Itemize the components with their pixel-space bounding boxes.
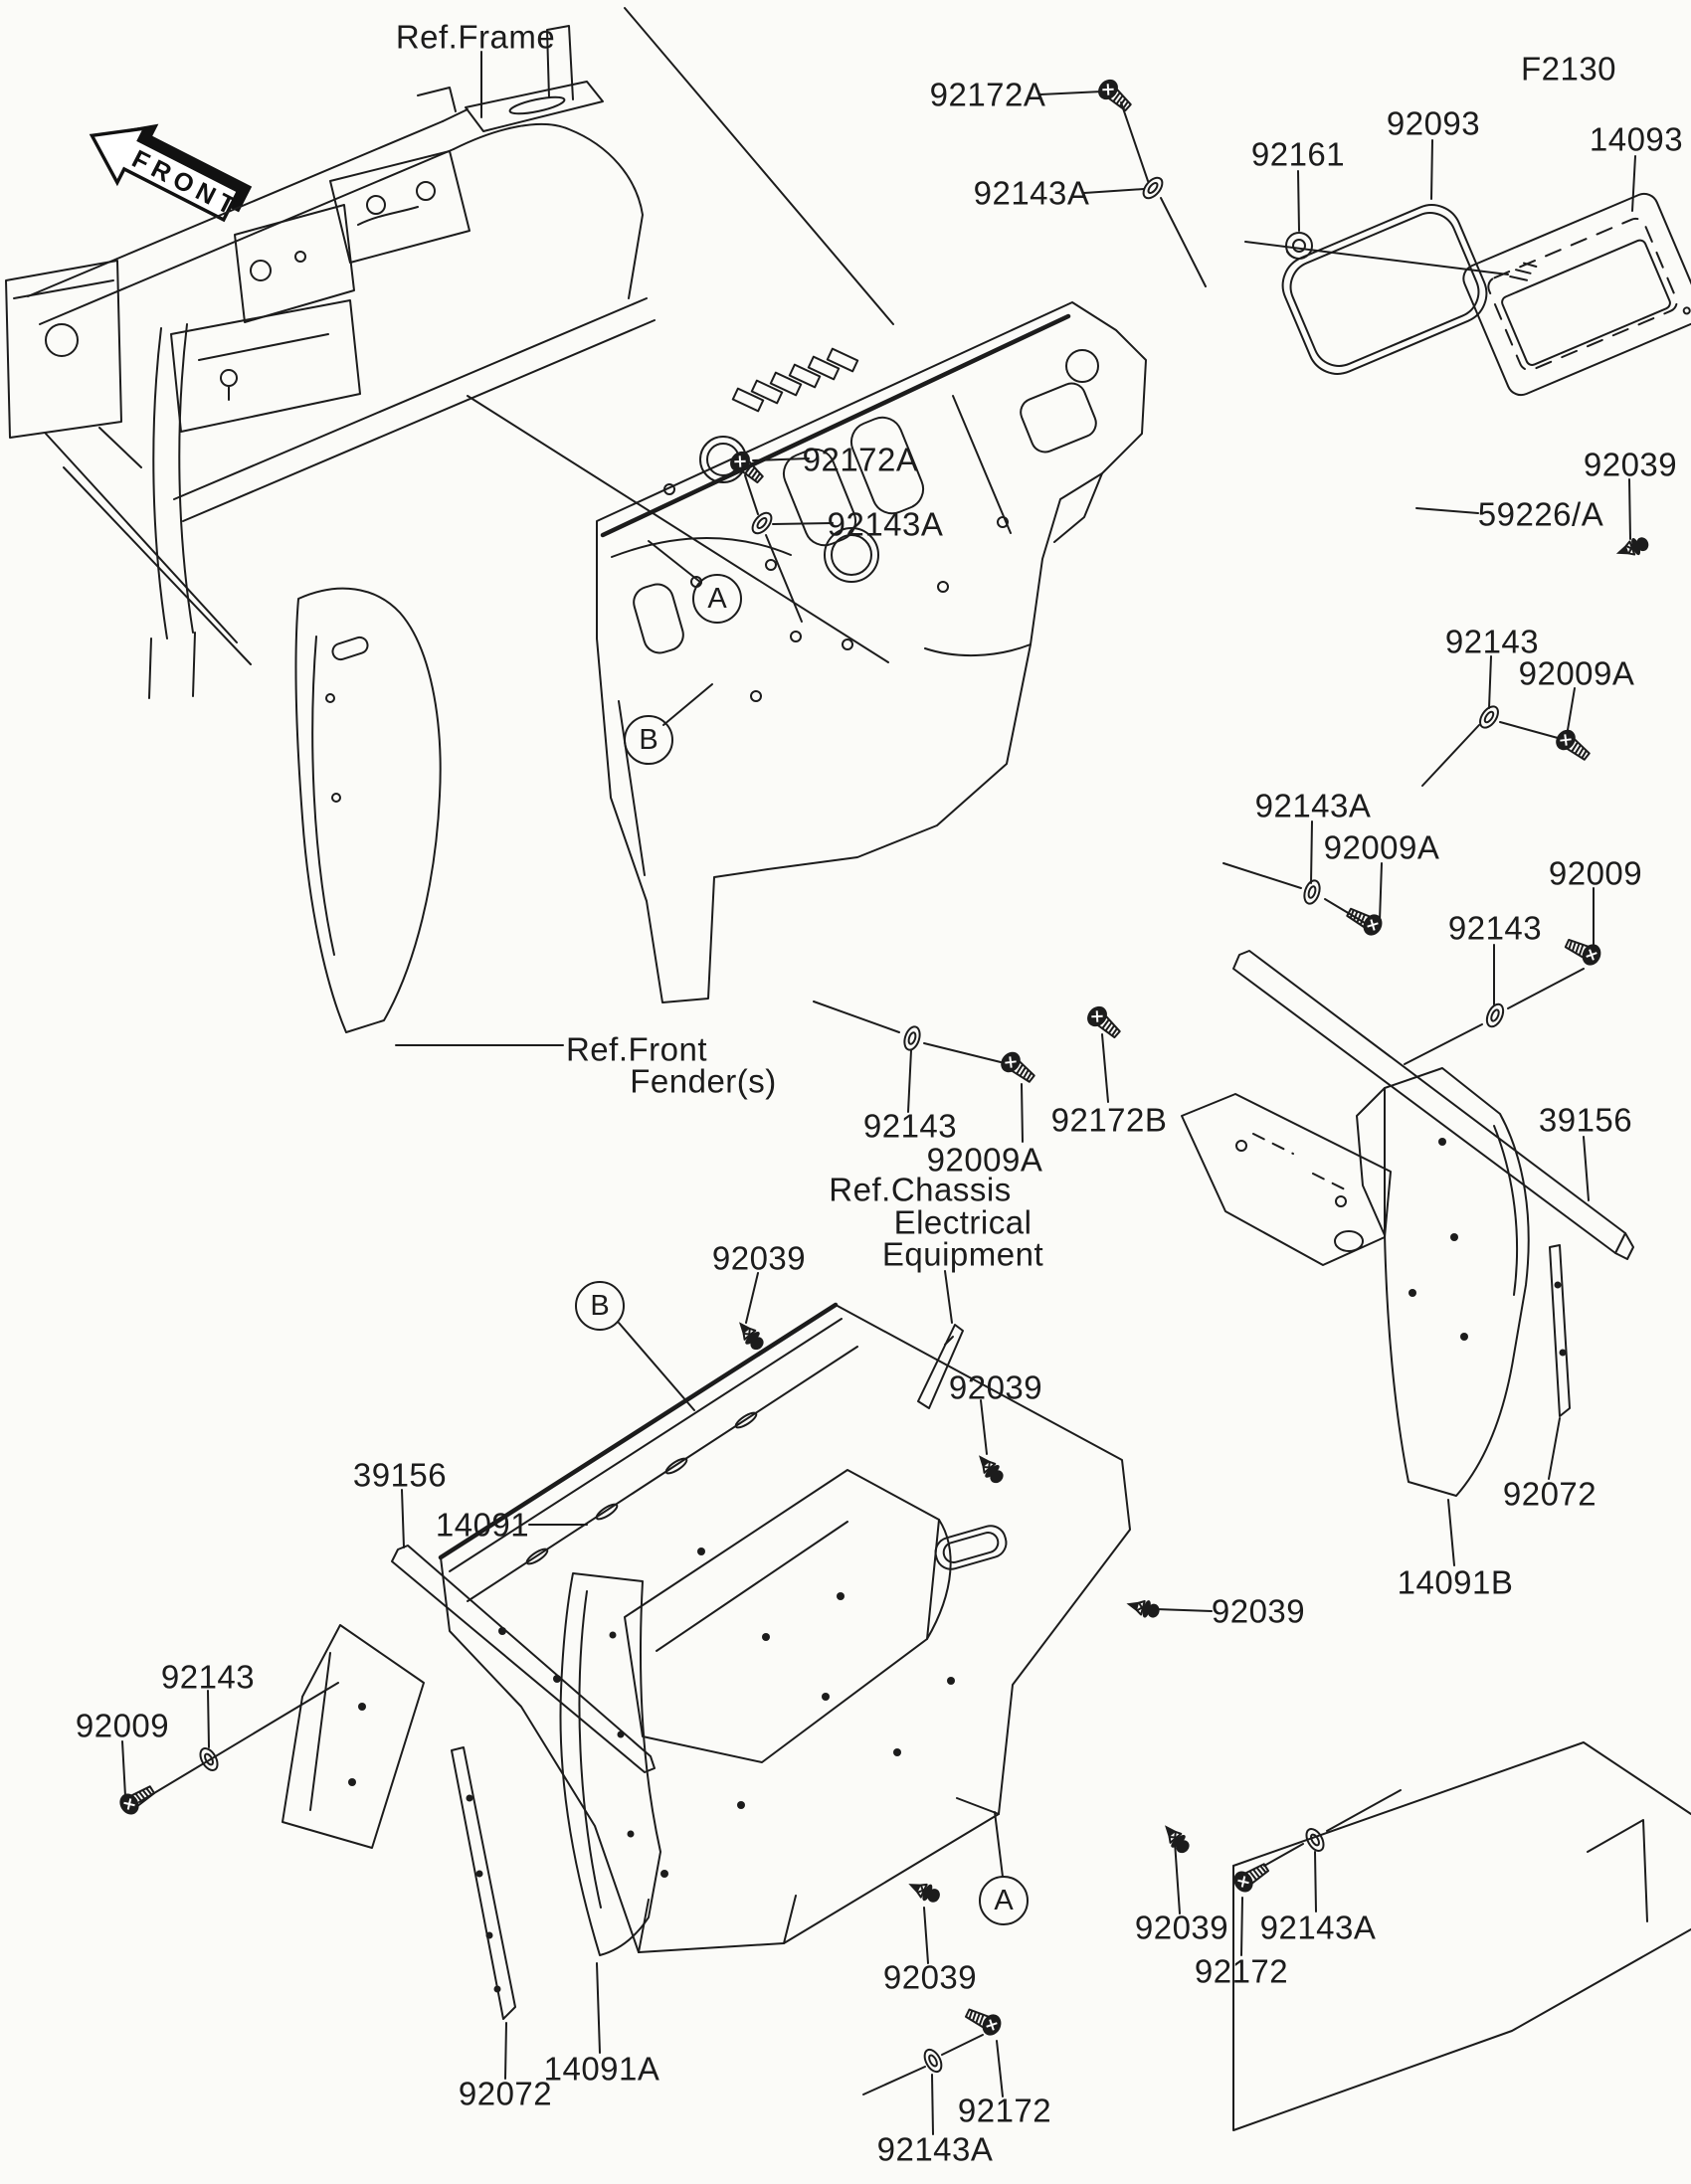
seal-92093-art <box>1273 196 1495 383</box>
front-arrow: FRONT <box>78 99 258 238</box>
frame-art <box>6 26 655 698</box>
pointer-lines <box>468 8 1508 662</box>
floor-panel-14091-art <box>441 1305 1130 1952</box>
clip-icon <box>972 1449 1008 1487</box>
screw-icon <box>963 2003 1005 2039</box>
clip-icon <box>732 1316 768 1354</box>
trim-39156-left-art <box>392 1546 655 1772</box>
screw-icon <box>1094 76 1135 115</box>
trim-39156-right-art <box>1233 951 1633 1259</box>
washer-icon <box>921 2047 945 2075</box>
washer-icon <box>1484 1001 1507 1029</box>
clip-icon <box>1613 534 1651 563</box>
screw-icon <box>997 1048 1038 1088</box>
washer-icon <box>1140 174 1166 201</box>
parts-diagram-page: FRONT <box>0 0 1691 2184</box>
washer-icon <box>902 1024 923 1051</box>
bottom-left-panel-art <box>282 1625 424 1848</box>
trim-92072-right-art <box>1550 1245 1570 1416</box>
grommet-92161-art <box>1286 233 1312 259</box>
screw-icon <box>116 1780 158 1818</box>
screw-icon <box>1563 934 1604 969</box>
leader-lines <box>122 52 1635 2134</box>
bottom-right-panel-art <box>1233 1742 1691 2130</box>
screw-icon <box>1083 1002 1124 1042</box>
side-cover-14091a-art <box>560 1573 660 1955</box>
diagram-line-art: FRONT <box>0 0 1691 2184</box>
washer-icon <box>1303 1826 1327 1854</box>
trim-92072-left-art <box>452 1747 515 2019</box>
clip-icon <box>1124 1595 1162 1621</box>
wiring-strip-art <box>918 1325 963 1408</box>
lower-bracket-art <box>1182 1094 1391 1265</box>
side-cover-14091b-art <box>1357 1068 1529 1496</box>
washer-icon <box>749 509 775 536</box>
clip-icon <box>905 1876 943 1907</box>
cover-14093-art <box>1459 190 1691 400</box>
washer-icon <box>1476 703 1501 731</box>
front-fender-art <box>295 589 440 1032</box>
screw-icon <box>1552 726 1594 766</box>
